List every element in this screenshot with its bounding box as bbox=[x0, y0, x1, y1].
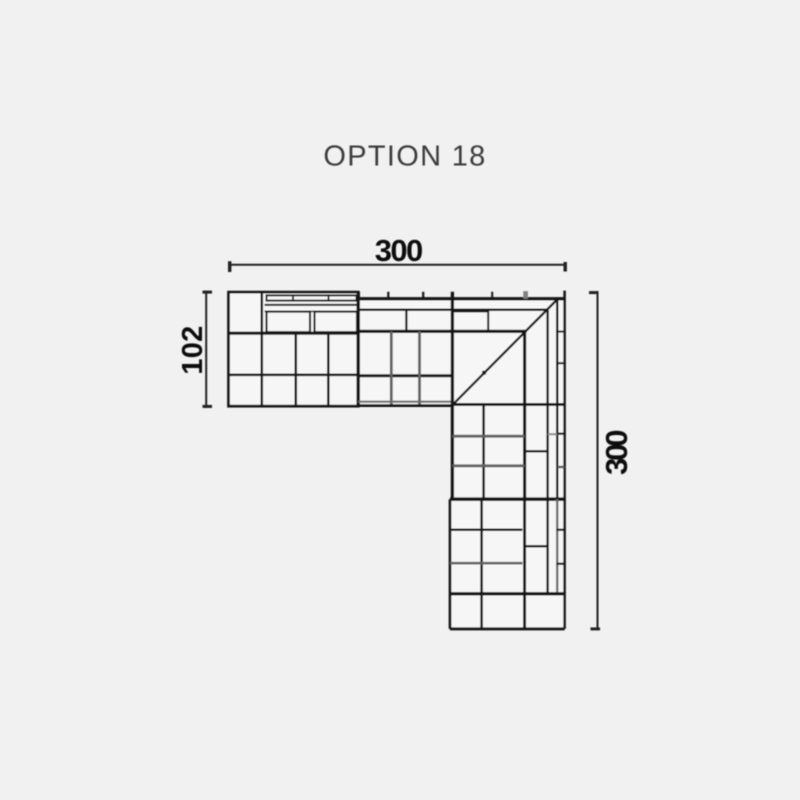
svg-text:300: 300 bbox=[599, 429, 634, 475]
svg-text:300: 300 bbox=[375, 233, 424, 268]
svg-text:OPTION 18: OPTION 18 bbox=[323, 141, 486, 173]
svg-text:102: 102 bbox=[177, 326, 209, 375]
